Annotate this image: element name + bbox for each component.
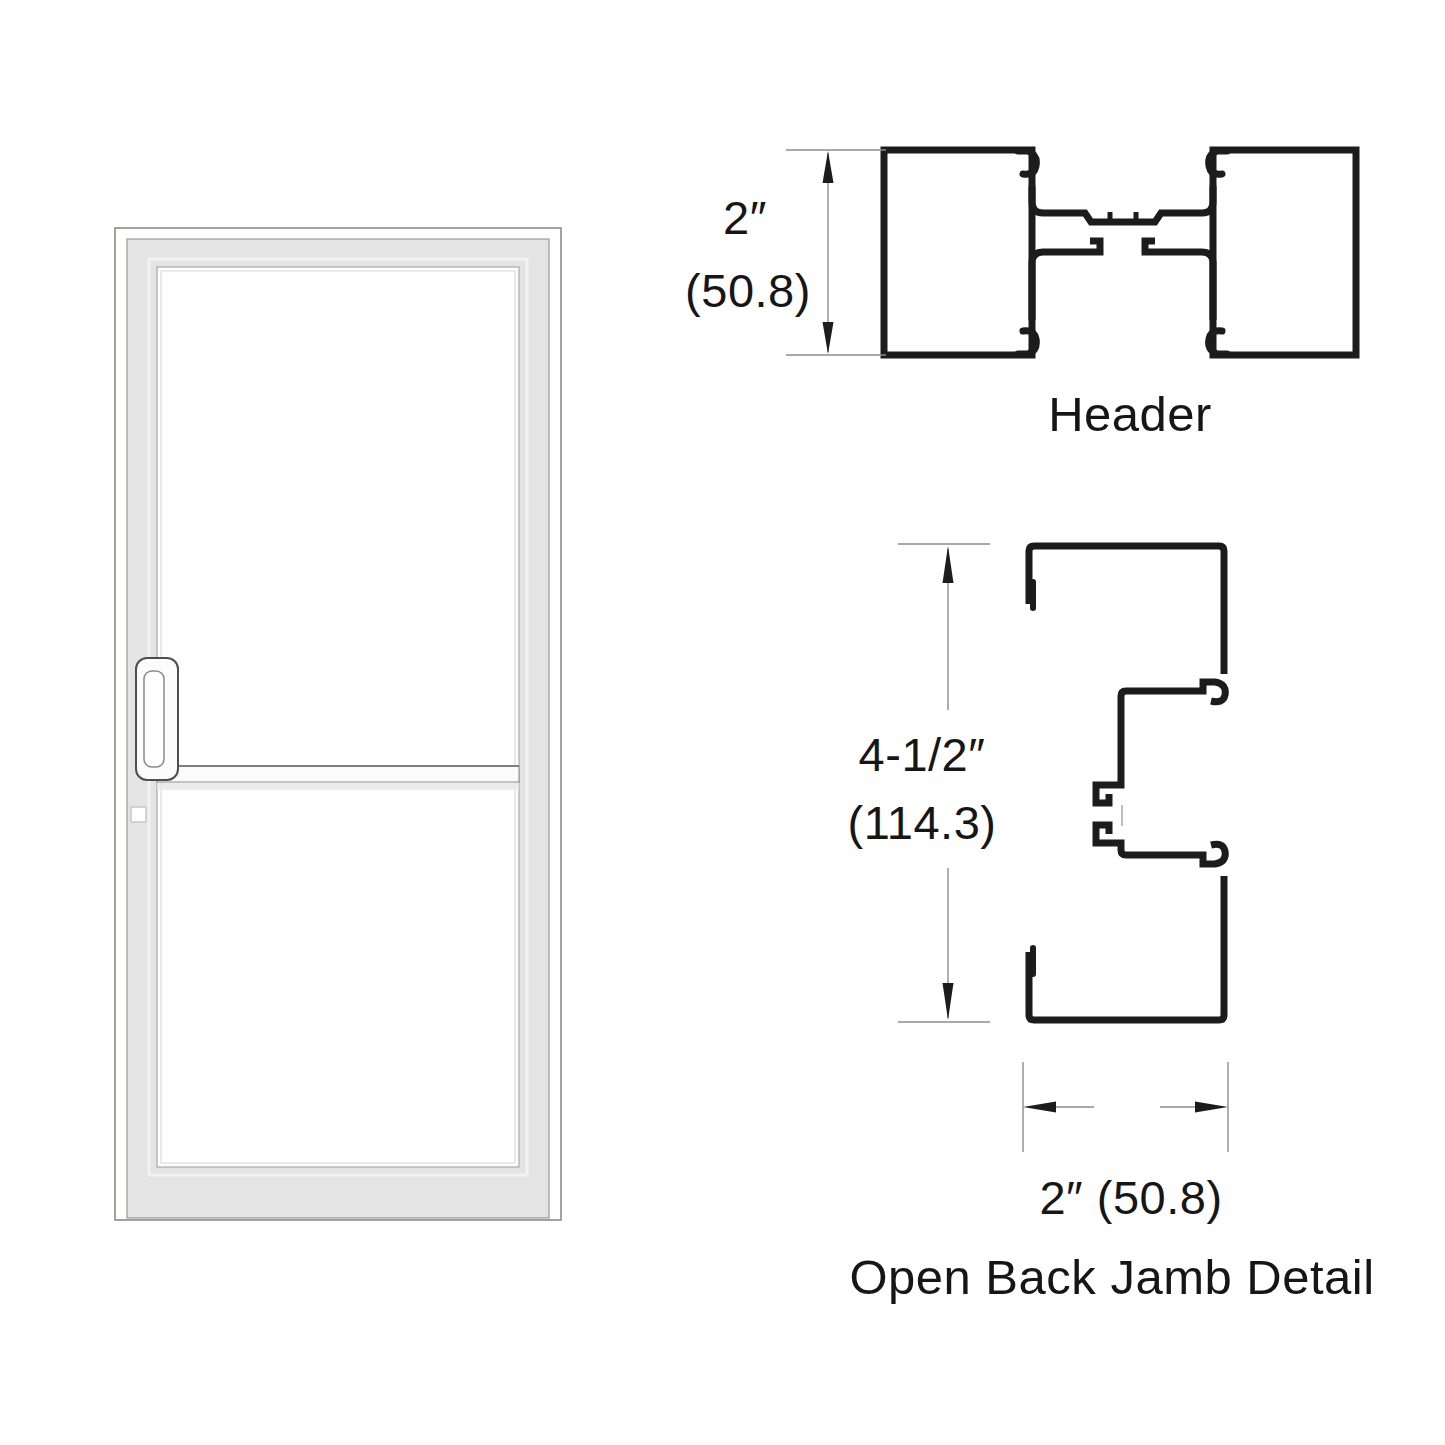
jamb-upper-web: [1096, 682, 1225, 803]
jamb-bottom-section: [1029, 876, 1224, 1020]
jamb-top-section: [1029, 546, 1224, 674]
header-upper-web: [1032, 186, 1213, 222]
door-pull-handle: [136, 658, 178, 780]
jamb-caption: Open Back Jamb Detail: [849, 1249, 1374, 1305]
door-elevation: [115, 228, 561, 1220]
header-lower-web-right: [1145, 241, 1213, 320]
jamb-width-dimension: [1023, 1062, 1228, 1152]
technical-drawing-page: 2″ (50.8) Header 4-1/2″ (114.3) 2″ (50.8…: [0, 0, 1445, 1445]
header-section-detail: [884, 150, 1356, 355]
door-glass: [157, 267, 519, 1167]
jamb-height-dimension: [898, 544, 990, 1022]
header-dimension: [786, 150, 886, 355]
header-dimension-inches-label: 2″: [723, 190, 767, 245]
header-caption: Header: [1048, 386, 1212, 442]
header-lower-web-left: [1032, 241, 1100, 320]
open-back-jamb-detail: [1029, 546, 1225, 1020]
jamb-height-mm-label: (114.3): [848, 795, 997, 850]
jamb-height-inches-label: 4-1/2″: [859, 727, 986, 782]
header-right-tube: [1213, 150, 1356, 355]
door-mid-rail: [157, 766, 519, 790]
door-lock-cylinder: [131, 807, 146, 822]
header-left-tube: [884, 150, 1032, 355]
jamb-width-dimension-label: 2″ (50.8): [1039, 1170, 1222, 1225]
header-dimension-mm-label: (50.8): [685, 263, 811, 318]
jamb-lower-web: [1096, 825, 1225, 864]
